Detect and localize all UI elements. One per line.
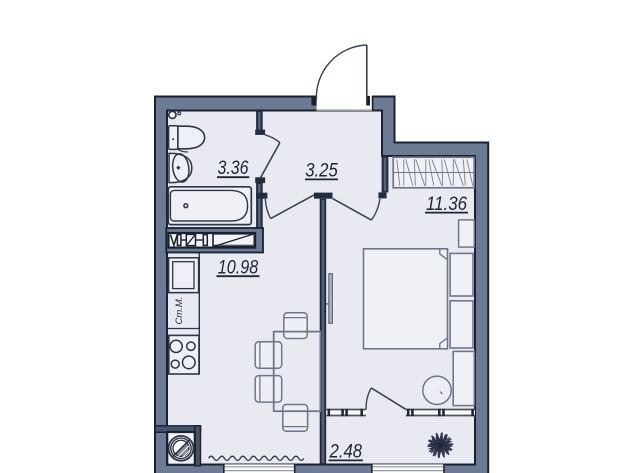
svg-text:3.25: 3.25 (305, 161, 338, 182)
svg-text:3.36: 3.36 (218, 158, 249, 179)
svg-text:2.48: 2.48 (329, 442, 363, 463)
svg-text:Ст.М.: Ст.М. (174, 297, 185, 325)
svg-text:11.36: 11.36 (426, 194, 467, 215)
